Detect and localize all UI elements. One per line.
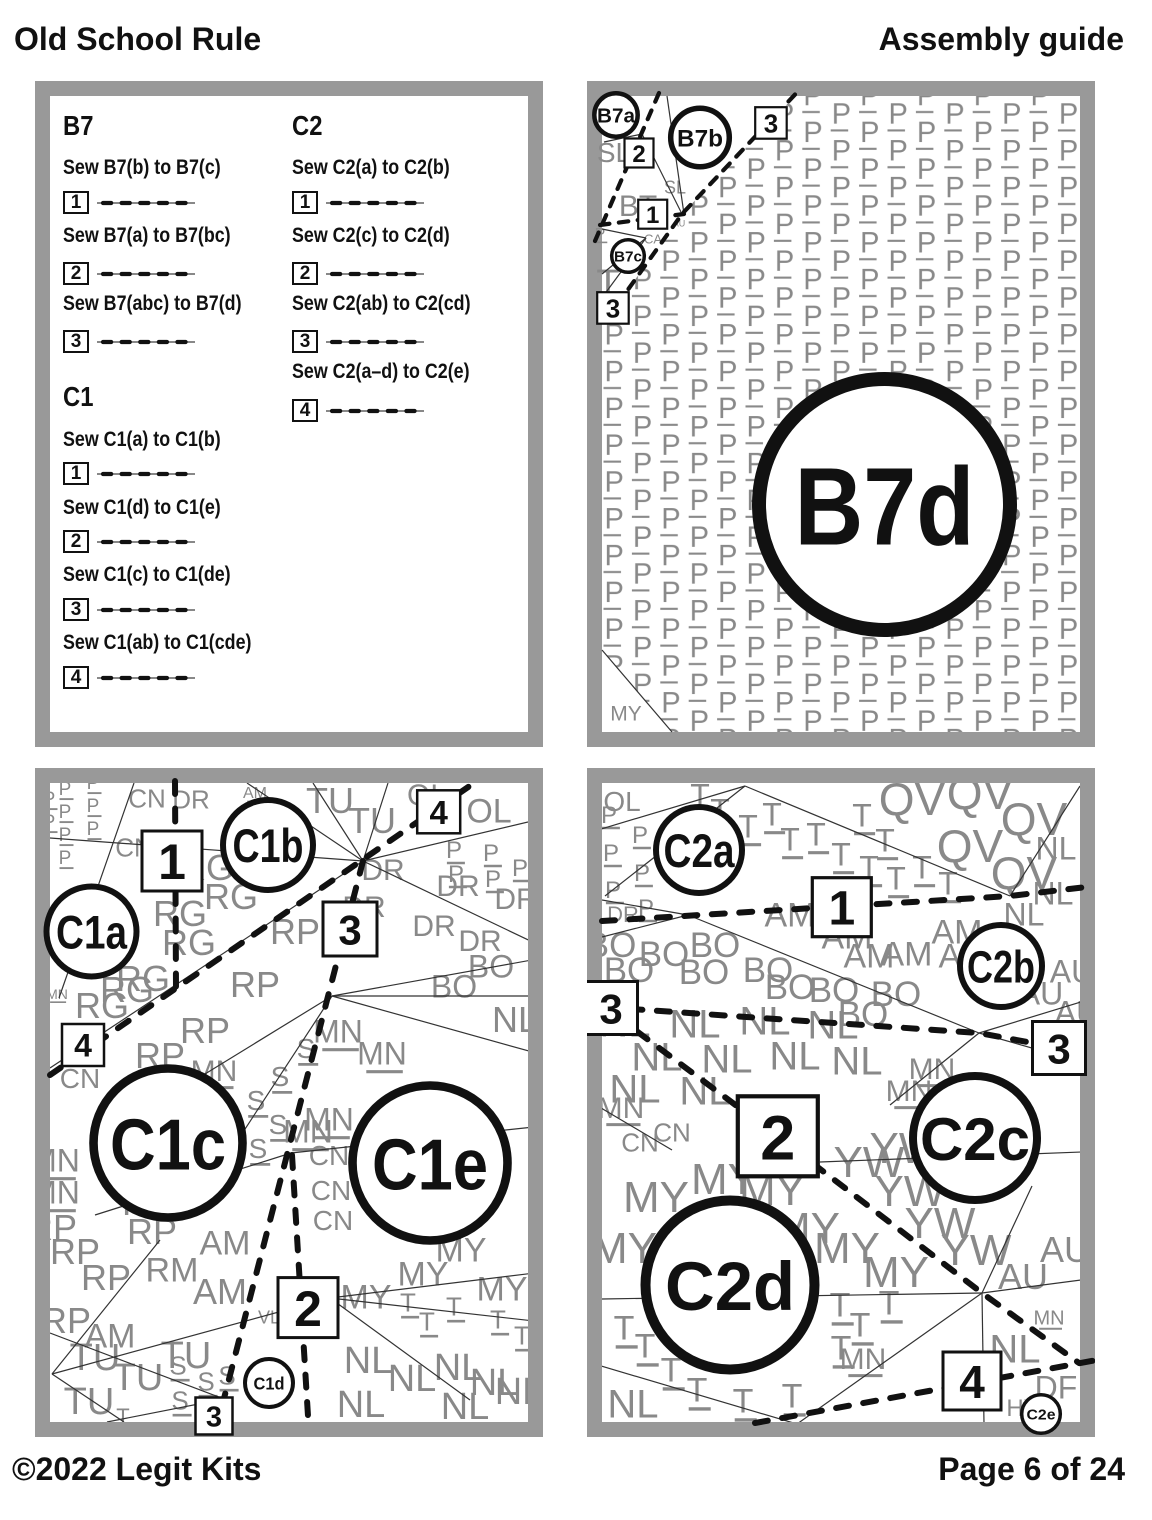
svg-text:TU: TU (348, 800, 396, 841)
svg-text:T: T (782, 1377, 803, 1415)
svg-text:MN: MN (1033, 1307, 1064, 1329)
svg-text:B7a: B7a (597, 105, 636, 127)
svg-text:T: T (806, 817, 826, 853)
svg-text:CN: CN (311, 1175, 351, 1206)
svg-text:MN: MN (357, 1036, 407, 1072)
svg-text:T: T (400, 1288, 416, 1318)
svg-text:T: T (780, 822, 800, 858)
svg-text:SL: SL (664, 178, 686, 198)
svg-text:RG: RG (162, 922, 216, 963)
svg-text:C2c: C2c (920, 1106, 1030, 1173)
svg-text:AU: AU (998, 1256, 1048, 1297)
svg-text:T: T (514, 1321, 530, 1351)
svg-text:C2d: C2d (665, 1248, 795, 1325)
svg-text:1: 1 (646, 202, 659, 229)
svg-text:P: P (634, 860, 650, 887)
svg-text:T: T (419, 1307, 435, 1337)
svg-text:S: S (171, 1386, 188, 1416)
svg-text:C2a: C2a (664, 824, 736, 877)
svg-text:3: 3 (1047, 1025, 1070, 1072)
svg-text:RM: RM (146, 1251, 199, 1289)
svg-text:MY: MY (477, 1270, 528, 1308)
svg-text:T: T (635, 1327, 656, 1365)
svg-text:P: P (483, 840, 499, 867)
svg-text:B7c: B7c (614, 249, 642, 265)
svg-text:AM: AM (193, 1271, 247, 1312)
svg-text:NL: NL (769, 1035, 820, 1079)
svg-text:T: T (852, 798, 872, 834)
svg-text:NL: NL (1036, 831, 1077, 867)
svg-text:B7b: B7b (677, 125, 723, 152)
svg-text:P: P (87, 796, 100, 817)
svg-text:NL: NL (388, 1358, 437, 1400)
svg-text:AM: AM (200, 1224, 251, 1262)
svg-text:MY: MY (610, 703, 642, 726)
svg-text:3: 3 (606, 294, 620, 324)
svg-text:P: P (59, 848, 72, 869)
svg-text:T: T (879, 1284, 900, 1322)
svg-text:2: 2 (632, 141, 645, 168)
svg-text:C1c: C1c (110, 1105, 226, 1185)
svg-text:T: T (886, 861, 906, 897)
svg-text:CA: CA (644, 232, 662, 247)
svg-text:MN: MN (840, 1343, 887, 1376)
svg-text:C2e: C2e (1027, 1407, 1056, 1423)
svg-text:P: P (603, 840, 619, 867)
svg-text:2: 2 (760, 1103, 795, 1173)
svg-text:4: 4 (959, 1356, 985, 1408)
svg-text:4: 4 (430, 794, 449, 831)
svg-text:T: T (850, 1306, 871, 1344)
svg-text:RP: RP (81, 1257, 131, 1298)
svg-text:T: T (687, 1371, 708, 1409)
svg-text:NL: NL (344, 1340, 393, 1382)
svg-text:NL: NL (607, 1383, 658, 1427)
svg-text:C2b: C2b (967, 941, 1035, 992)
svg-text:NL: NL (337, 1384, 386, 1426)
svg-text:C1e: C1e (372, 1125, 488, 1205)
svg-text:C1d: C1d (254, 1373, 285, 1393)
svg-text:T: T (614, 1309, 635, 1347)
svg-text:3: 3 (599, 985, 622, 1032)
svg-text:B7d: B7d (795, 446, 975, 569)
svg-text:BO: BO (871, 975, 922, 1014)
svg-text:P: P (632, 822, 648, 849)
svg-text:NL: NL (679, 1070, 730, 1114)
svg-text:2: 2 (294, 1281, 322, 1337)
svg-text:CN: CN (60, 1063, 100, 1094)
svg-text:T: T (490, 1305, 506, 1335)
svg-text:OL: OL (466, 792, 511, 830)
svg-text:AM: AM (882, 935, 933, 973)
svg-text:CN: CN (128, 784, 166, 814)
svg-text:TU: TU (306, 780, 354, 821)
svg-text:CN: CN (309, 1140, 349, 1171)
svg-text:BO: BO (679, 953, 730, 992)
svg-text:CN: CN (653, 1118, 691, 1148)
svg-text:RP: RP (230, 964, 280, 1005)
svg-text:3: 3 (764, 109, 778, 139)
svg-text:T: T (830, 1286, 851, 1324)
svg-text:CN: CN (313, 1205, 353, 1236)
svg-text:T: T (733, 1382, 754, 1420)
svg-text:T: T (762, 797, 782, 833)
svg-text:T: T (912, 850, 932, 886)
svg-text:NL: NL (831, 1040, 882, 1084)
svg-text:P: P (512, 855, 528, 882)
svg-text:S: S (269, 1109, 288, 1140)
svg-text:1: 1 (158, 834, 186, 890)
svg-text:P: P (59, 802, 72, 823)
svg-text:S: S (249, 1133, 268, 1164)
svg-text:NL: NL (441, 1386, 490, 1428)
svg-text:C1a: C1a (56, 906, 128, 959)
svg-text:TU: TU (161, 1335, 212, 1377)
svg-text:4: 4 (74, 1028, 92, 1064)
svg-text:P: P (87, 819, 100, 840)
svg-text:1: 1 (828, 883, 855, 936)
svg-text:C1b: C1b (233, 819, 304, 872)
svg-text:P: P (59, 825, 72, 846)
svg-text:DR: DR (436, 870, 479, 903)
svg-text:DR: DR (412, 910, 455, 943)
svg-text:3: 3 (338, 906, 361, 953)
svg-text:3: 3 (206, 1402, 222, 1434)
svg-text:AM: AM (765, 896, 816, 934)
svg-text:RP: RP (180, 1010, 230, 1051)
svg-text:T: T (446, 1292, 462, 1322)
svg-text:T: T (831, 837, 851, 873)
